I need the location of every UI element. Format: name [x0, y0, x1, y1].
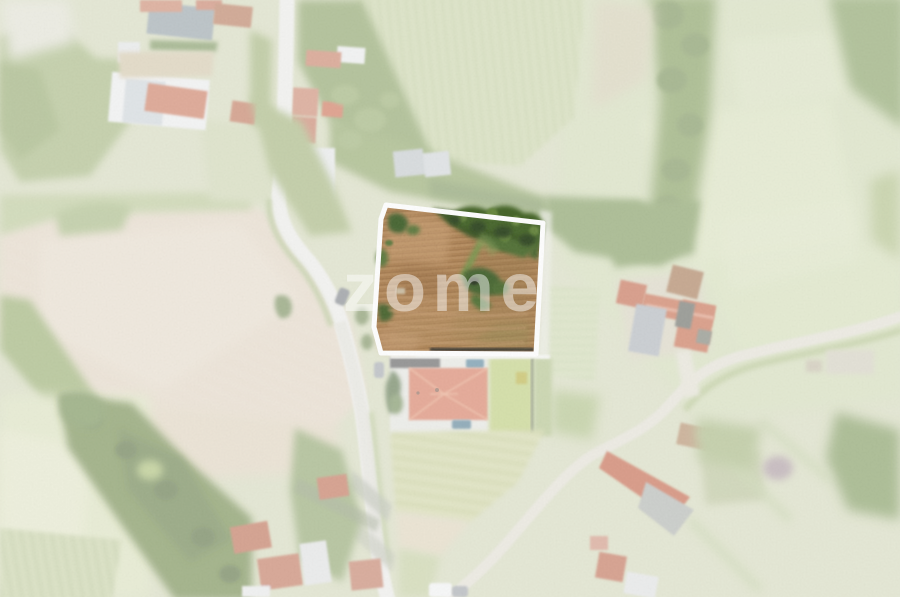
svg-text:zome: zome	[343, 249, 545, 326]
